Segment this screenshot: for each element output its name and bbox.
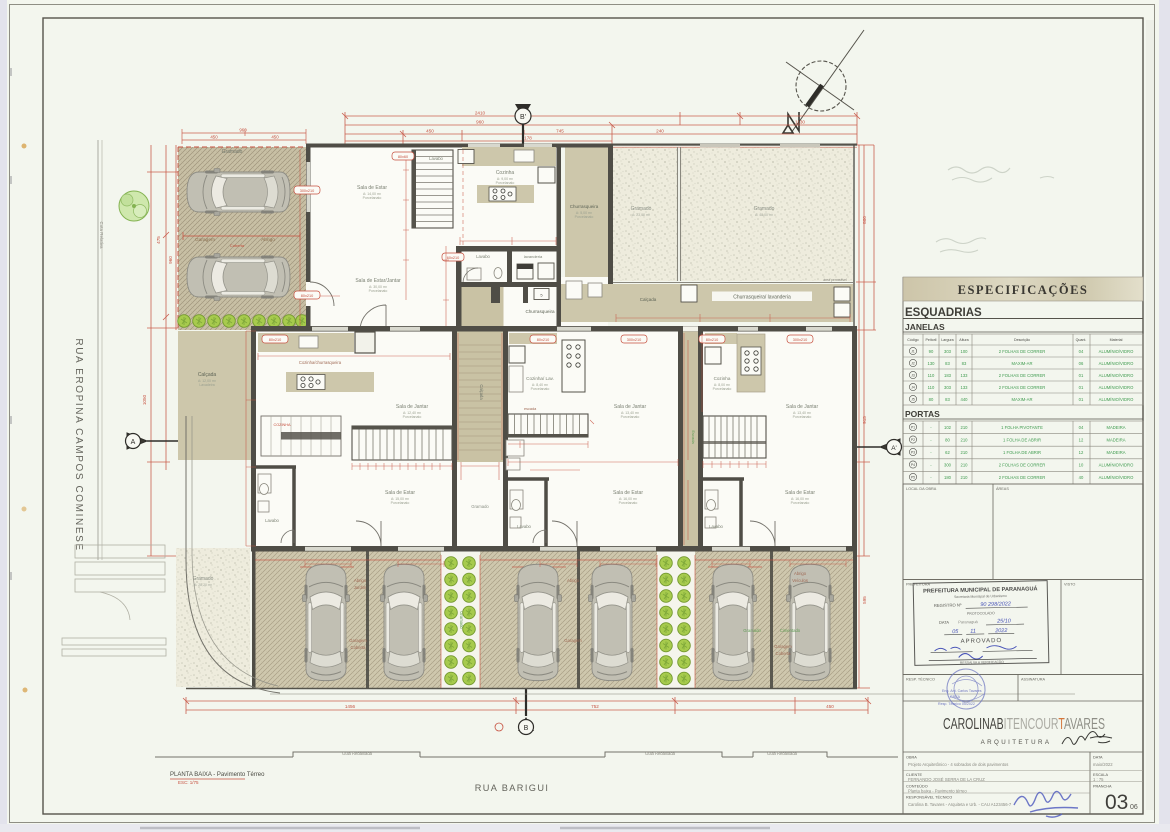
svg-text:102: 102 [944, 425, 952, 430]
svg-text:1050: 1050 [142, 394, 147, 405]
svg-text:lavanderia: lavanderia [524, 254, 543, 259]
svg-text:Lavabo: Lavabo [265, 518, 279, 523]
svg-text:Veículos: Veículos [792, 578, 808, 583]
svg-text:01: 01 [1079, 397, 1084, 402]
svg-text:2 FOLHAS DE CORRER: 2 FOLHAS DE CORRER [999, 349, 1046, 354]
svg-text:Quant.: Quant. [1076, 338, 1087, 342]
svg-text:60x210: 60x210 [447, 256, 459, 260]
svg-text:450: 450 [271, 135, 279, 140]
svg-text:J4: J4 [911, 386, 915, 390]
svg-text:Guia Rebaixada: Guia Rebaixada [645, 751, 676, 756]
svg-text:183: 183 [944, 373, 952, 378]
svg-text:Porcelanato: Porcelanato [619, 501, 638, 505]
svg-text:Sala de Estar: Sala de Estar [613, 490, 643, 496]
svg-text:90 298/2022: 90 298/2022 [980, 601, 1011, 608]
svg-text:Garagem: Garagem [774, 644, 792, 649]
svg-text:Gramado: Gramado [743, 628, 761, 633]
svg-text:210: 210 [961, 450, 969, 455]
svg-text:Lavabo: Lavabo [429, 156, 443, 161]
svg-text:Garagem: Garagem [195, 237, 215, 243]
svg-text:Escada: Escada [691, 430, 696, 444]
svg-text:PROTOCOLADO: PROTOCOLADO [967, 611, 995, 616]
svg-text:Material: Material [1110, 338, 1123, 342]
svg-text:Lavadeira: Lavadeira [199, 383, 214, 387]
svg-text:RUA EROPINA CAMPOS COMINESE: RUA EROPINA CAMPOS COMINESE [73, 338, 84, 551]
svg-text:83: 83 [945, 361, 950, 366]
svg-text:JANELAS: JANELAS [905, 322, 945, 332]
svg-text:Porcelanato: Porcelanato [793, 415, 812, 419]
svg-text:Abrigo: Abrigo [354, 578, 367, 583]
svg-text:P5: P5 [911, 476, 915, 480]
svg-text:25/10: 25/10 [996, 618, 1012, 624]
svg-text:1 FOLHA DE ABRIR: 1 FOLHA DE ABRIR [1003, 450, 1041, 455]
svg-text:A: 23,00 m²: A: 23,00 m² [632, 213, 651, 217]
svg-text:J3: J3 [911, 374, 915, 378]
svg-text:2 FOLHAS DE CORRER: 2 FOLHAS DE CORRER [999, 385, 1046, 390]
svg-text:MADEIRA: MADEIRA [1106, 438, 1125, 443]
svg-text:2 FOLHAS DE CORRER: 2 FOLHAS DE CORRER [999, 373, 1046, 378]
svg-text:450: 450 [426, 129, 434, 134]
svg-text:80x210: 80x210 [269, 338, 281, 342]
svg-text:Porcelanato: Porcelanato [369, 289, 388, 293]
svg-text:Gramado: Gramado [222, 149, 243, 155]
svg-text:Churrasqueira: Churrasqueira [570, 204, 599, 209]
svg-text:Abrigo: Abrigo [567, 578, 580, 583]
svg-text:12: 12 [1079, 438, 1084, 443]
svg-text:Churrasqueira: Churrasqueira [525, 309, 555, 314]
svg-text:A': A' [891, 445, 897, 452]
svg-text:80x210: 80x210 [301, 294, 313, 298]
svg-text:178: 178 [524, 136, 532, 141]
svg-text:Coberta: Coberta [776, 651, 792, 656]
svg-text:B: B [524, 725, 529, 732]
svg-text:REGISTRO Nº: REGISTRO Nº [934, 602, 962, 608]
svg-text:Gramado: Gramado [754, 206, 775, 212]
svg-text:Sala de Jantar: Sala de Jantar [786, 404, 819, 410]
svg-text:ALUMÍNIO/VIDRO: ALUMÍNIO/VIDRO [1099, 361, 1134, 366]
svg-text:A: 48,00 m²: A: 48,00 m² [755, 213, 774, 217]
svg-text:Peitoril: Peitoril [926, 338, 937, 342]
svg-text:06: 06 [1130, 804, 1138, 811]
svg-text:ÁREAS: ÁREAS [996, 487, 1009, 491]
svg-text:Sala de Estar/Jantar: Sala de Estar/Jantar [355, 278, 401, 284]
svg-text:RUA BARIGUI: RUA BARIGUI [475, 783, 550, 793]
svg-text:80: 80 [945, 438, 950, 443]
svg-text:Eng. Ant. Carlos Tavares: Eng. Ant. Carlos Tavares [942, 689, 982, 693]
svg-text:ALUMÍNIO/VIDRO: ALUMÍNIO/VIDRO [1099, 373, 1134, 378]
svg-text:1 FOLHA PIVOTANTE: 1 FOLHA PIVOTANTE [1001, 425, 1043, 430]
svg-text:80x60: 80x60 [398, 155, 408, 159]
svg-text:1130: 1130 [795, 120, 805, 125]
svg-text:915: 915 [862, 416, 867, 424]
svg-text:300x210: 300x210 [627, 338, 642, 342]
svg-text:960: 960 [476, 120, 484, 125]
svg-text:03: 03 [1105, 791, 1128, 814]
svg-text:DATA: DATA [1093, 756, 1103, 760]
svg-text:440: 440 [961, 397, 969, 402]
svg-text:800: 800 [862, 216, 867, 224]
svg-text:Cozinha/churrasqueira: Cozinha/churrasqueira [299, 360, 342, 365]
svg-text:80x210: 80x210 [537, 338, 549, 342]
svg-text:Garagem: Garagem [564, 638, 582, 643]
svg-text:303: 303 [944, 349, 952, 354]
svg-text:Porcelanato: Porcelanato [791, 501, 810, 505]
svg-text:83: 83 [962, 361, 967, 366]
svg-text:CAROLINABITENCOURTAVARES: CAROLINABITENCOURTAVARES [943, 716, 1105, 733]
svg-text:área permeável: área permeável [823, 278, 847, 282]
svg-text:210: 210 [961, 438, 969, 443]
svg-text:Lavabo: Lavabo [476, 254, 490, 259]
svg-text:PRANCHA: PRANCHA [1093, 785, 1112, 789]
svg-text:ESQUADRIAS: ESQUADRIAS [905, 307, 982, 319]
svg-text:11: 11 [970, 629, 976, 635]
svg-text:Resp. Técnico 05/2022: Resp. Técnico 05/2022 [938, 702, 975, 706]
svg-text:595: 595 [862, 596, 867, 604]
svg-text:ESC: 1/75: ESC: 1/75 [178, 780, 199, 785]
svg-text:40: 40 [1079, 475, 1084, 480]
svg-text:01: 01 [1079, 373, 1084, 378]
svg-text:RESP. TÉCNICO: RESP. TÉCNICO [906, 677, 935, 682]
svg-text:Código: Código [907, 338, 918, 342]
svg-text:133: 133 [961, 385, 969, 390]
svg-text:APROVADO: APROVADO [961, 638, 1003, 645]
svg-text:960: 960 [239, 128, 247, 133]
svg-text:COZINHA: COZINHA [273, 423, 291, 427]
svg-text:130: 130 [928, 361, 936, 366]
svg-text:ESPECIFICAÇÕES: ESPECIFICAÇÕES [958, 283, 1089, 297]
svg-text:Descrição: Descrição [1014, 338, 1030, 342]
svg-text:Sala de Estar: Sala de Estar [385, 490, 415, 496]
svg-text:745: 745 [556, 129, 564, 134]
svg-text:Calçada: Calçada [640, 297, 657, 302]
svg-text:240: 240 [656, 129, 664, 134]
svg-text:Cota Relativa: Cota Relativa [99, 221, 104, 249]
svg-text:110: 110 [928, 373, 935, 378]
svg-text:06: 06 [1079, 361, 1084, 366]
svg-text:MADEIRA: MADEIRA [1106, 425, 1125, 430]
svg-text:Cozinha/ Lav.: Cozinha/ Lav. [526, 376, 554, 381]
svg-text:Largura: Largura [941, 338, 953, 342]
svg-text:80: 80 [929, 397, 934, 402]
svg-text:CREA: CREA [950, 695, 961, 699]
svg-text:133: 133 [961, 373, 969, 378]
svg-text:Gramado: Gramado [471, 504, 489, 509]
svg-text:Cozinha: Cozinha [714, 376, 731, 381]
svg-text:300x210: 300x210 [793, 338, 808, 342]
svg-text:752: 752 [591, 704, 599, 709]
svg-text:450: 450 [210, 135, 218, 140]
svg-text:Sala de Jantar: Sala de Jantar [396, 404, 429, 410]
svg-text:DATA: DATA [939, 620, 950, 625]
svg-text:RESSALVA A VERIFICAÇÃO: RESSALVA A VERIFICAÇÃO [960, 659, 1004, 665]
svg-text:Sala de Estar: Sala de Estar [357, 185, 387, 191]
svg-text:B': B' [520, 114, 526, 121]
svg-text:Carolina B. Tavares - Arquitet: Carolina B. Tavares - Arquiteta e Urb. -… [908, 802, 1012, 807]
svg-text:Porcelanato: Porcelanato [575, 215, 594, 219]
svg-text:210: 210 [961, 475, 969, 480]
svg-text:210: 210 [961, 463, 969, 468]
svg-text:2410: 2410 [475, 111, 486, 116]
svg-text:Calçada: Calçada [198, 372, 217, 378]
svg-text:450: 450 [826, 704, 834, 709]
svg-text:P3: P3 [911, 451, 915, 455]
svg-text:MADEIRA: MADEIRA [1106, 450, 1125, 455]
svg-text:Gramado: Gramado [631, 206, 652, 212]
svg-text:MAXIM-AR: MAXIM-AR [1012, 397, 1033, 402]
svg-text:ARQUITETURA: ARQUITETURA [981, 739, 1052, 746]
svg-text:Coberta: Coberta [351, 645, 367, 650]
svg-text:210: 210 [961, 425, 969, 430]
svg-text:100: 100 [961, 349, 969, 354]
svg-text:300x210: 300x210 [300, 189, 315, 193]
svg-text:Porcelanato: Porcelanato [496, 181, 515, 185]
svg-text:04: 04 [1079, 425, 1084, 430]
svg-text:83: 83 [945, 397, 950, 402]
svg-text:04: 04 [1079, 349, 1084, 354]
svg-text:VISTO: VISTO [1064, 583, 1075, 587]
svg-text:300: 300 [944, 463, 952, 468]
svg-text:10: 10 [1079, 463, 1084, 468]
svg-text:Porcelanato: Porcelanato [713, 387, 732, 391]
svg-text:ALUMÍNIO/VIDRO: ALUMÍNIO/VIDRO [1099, 385, 1134, 390]
svg-text:ALUMÍNIO/VIDRO: ALUMÍNIO/VIDRO [1099, 463, 1134, 468]
svg-text:J2: J2 [911, 362, 915, 366]
svg-text:Lavabo: Lavabo [709, 524, 723, 529]
svg-text:1 FOLHA DE ABRIR: 1 FOLHA DE ABRIR [1003, 438, 1041, 443]
svg-text:Abrigo: Abrigo [261, 237, 275, 243]
svg-text:Lavabo: Lavabo [517, 524, 531, 529]
svg-text:110: 110 [928, 385, 935, 390]
svg-text:475: 475 [156, 236, 161, 244]
svg-text:12: 12 [1079, 450, 1084, 455]
svg-text:Projeto Arquitetônico - 4 sobr: Projeto Arquitetônico - 4 sobrados de do… [908, 762, 1008, 767]
svg-text:PORTAS: PORTAS [905, 409, 940, 419]
svg-text:RESPONSÁVEL TÉCNICO: RESPONSÁVEL TÉCNICO [906, 795, 952, 800]
svg-text:A: A [131, 439, 136, 446]
svg-text:P1: P1 [911, 426, 915, 430]
svg-text:ALUMÍNIO/VIDRO: ALUMÍNIO/VIDRO [1099, 475, 1134, 480]
svg-text:Porcelanato: Porcelanato [403, 415, 422, 419]
svg-text:80x210: 80x210 [706, 338, 718, 342]
svg-text:Churrasqueira/ lavanderia: Churrasqueira/ lavanderia [733, 295, 791, 301]
svg-text:Paranaguá: Paranaguá [958, 619, 978, 624]
svg-text:P2: P2 [911, 438, 915, 442]
svg-text:Garagem: Garagem [349, 638, 367, 643]
svg-text:Sala de Estar: Sala de Estar [785, 490, 815, 496]
svg-text:Porcelanato: Porcelanato [391, 501, 410, 505]
svg-text:Porcelanato: Porcelanato [531, 387, 550, 391]
svg-text:960: 960 [168, 256, 173, 264]
svg-text:A: 28,20 m²: A: 28,20 m² [194, 583, 213, 587]
svg-text:Guia Rebaixada: Guia Rebaixada [767, 751, 798, 756]
svg-text:ALUMÍNIO/VIDRO: ALUMÍNIO/VIDRO [1099, 349, 1134, 354]
svg-text:J1: J1 [911, 350, 915, 354]
svg-text:2 FOLHAS DE CORRER: 2 FOLHAS DE CORRER [999, 475, 1046, 480]
svg-text:2 FOLHAS DE CORRER: 2 FOLHAS DE CORRER [999, 463, 1046, 468]
svg-text:Altura: Altura [959, 338, 968, 342]
svg-text:ALUMÍNIO/VIDRO: ALUMÍNIO/VIDRO [1099, 397, 1134, 402]
svg-text:J5: J5 [911, 398, 915, 402]
svg-text:OBRA: OBRA [906, 756, 917, 760]
svg-text:Jardim: Jardim [354, 585, 367, 590]
svg-text:303: 303 [944, 385, 952, 390]
svg-text:Sala de Jantar: Sala de Jantar [614, 404, 647, 410]
svg-text:PLANTA BAIXA - Pavimento Térre: PLANTA BAIXA - Pavimento Térreo [170, 772, 265, 778]
svg-text:Calçada: Calçada [479, 384, 484, 400]
svg-text:Guia Rebaixada: Guia Rebaixada [342, 751, 373, 756]
svg-text:maio/2022: maio/2022 [1093, 762, 1113, 767]
svg-text:Cozinha: Cozinha [496, 170, 515, 176]
svg-text:escada: escada [524, 407, 537, 411]
svg-text:LOCAL DA OBRA: LOCAL DA OBRA [906, 487, 937, 491]
svg-text:1456: 1456 [345, 704, 356, 709]
svg-text:62: 62 [945, 450, 950, 455]
svg-text:Abrigo: Abrigo [794, 571, 807, 576]
svg-text:P4: P4 [911, 463, 915, 467]
svg-text:01: 01 [1079, 385, 1084, 390]
svg-text:Cimentado: Cimentado [780, 628, 801, 633]
svg-text:90: 90 [929, 349, 934, 354]
svg-text:Coberta: Coberta [230, 243, 245, 248]
svg-text:Gramado: Gramado [193, 576, 214, 582]
svg-text:MAXIM-AR: MAXIM-AR [1012, 361, 1033, 366]
svg-text:180: 180 [944, 475, 952, 480]
svg-text:ASSINATURA: ASSINATURA [1021, 678, 1045, 682]
svg-text:Porcelanato: Porcelanato [363, 196, 382, 200]
svg-text:Porcelanato: Porcelanato [621, 415, 640, 419]
